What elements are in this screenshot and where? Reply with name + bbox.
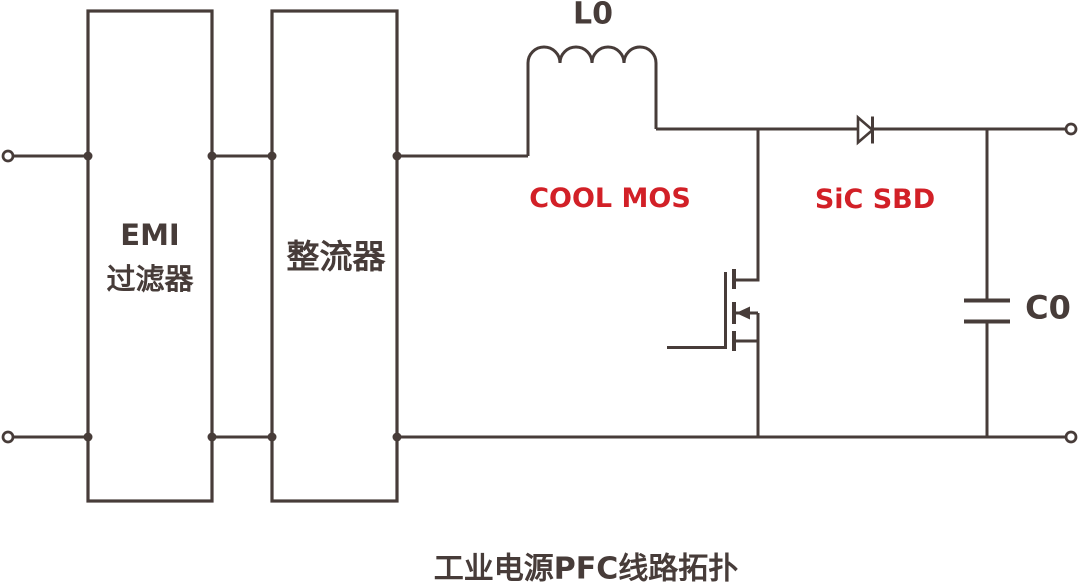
capacitor-label: C0 (1025, 290, 1071, 325)
input-terminal-bottom-icon (3, 432, 13, 442)
inductor-symbol (528, 47, 656, 156)
junction-dot (208, 152, 217, 161)
mosfet-label: COOL MOS (529, 184, 691, 214)
output-terminal-top-icon (1066, 124, 1076, 134)
capacitor-symbol (964, 129, 1010, 437)
junction-dot (208, 433, 217, 442)
junction-dot (268, 433, 277, 442)
emi-filter-label-line2: 过滤器 (106, 257, 193, 301)
junction-dot (393, 152, 402, 161)
junction-dot (84, 152, 93, 161)
rectifier-label: 整流器 (287, 239, 386, 275)
emi-filter-label-line1: EMI (106, 213, 193, 257)
diode-anode-triangle (858, 118, 873, 143)
input-terminal-top-icon (3, 151, 13, 161)
pfc-topology-diagram: L0 EMI 过滤器 整流器 COOL MOS SiC SBD C0 工业电源P… (0, 0, 1080, 587)
mosfet-drain-lead (734, 129, 758, 280)
diagram-caption: 工业电源PFC线路拓扑 (434, 553, 739, 586)
diode-symbol (858, 117, 873, 144)
mosfet-body-arrow-icon (736, 307, 750, 320)
diode-label: SiC SBD (815, 185, 935, 215)
mosfet-symbol (667, 129, 758, 437)
output-terminal-bottom-icon (1066, 432, 1076, 442)
junction-dot (268, 152, 277, 161)
junction-dot (84, 433, 93, 442)
junction-dot (393, 433, 402, 442)
emi-filter-label: EMI 过滤器 (106, 213, 193, 301)
inductor-label: L0 (573, 0, 613, 31)
